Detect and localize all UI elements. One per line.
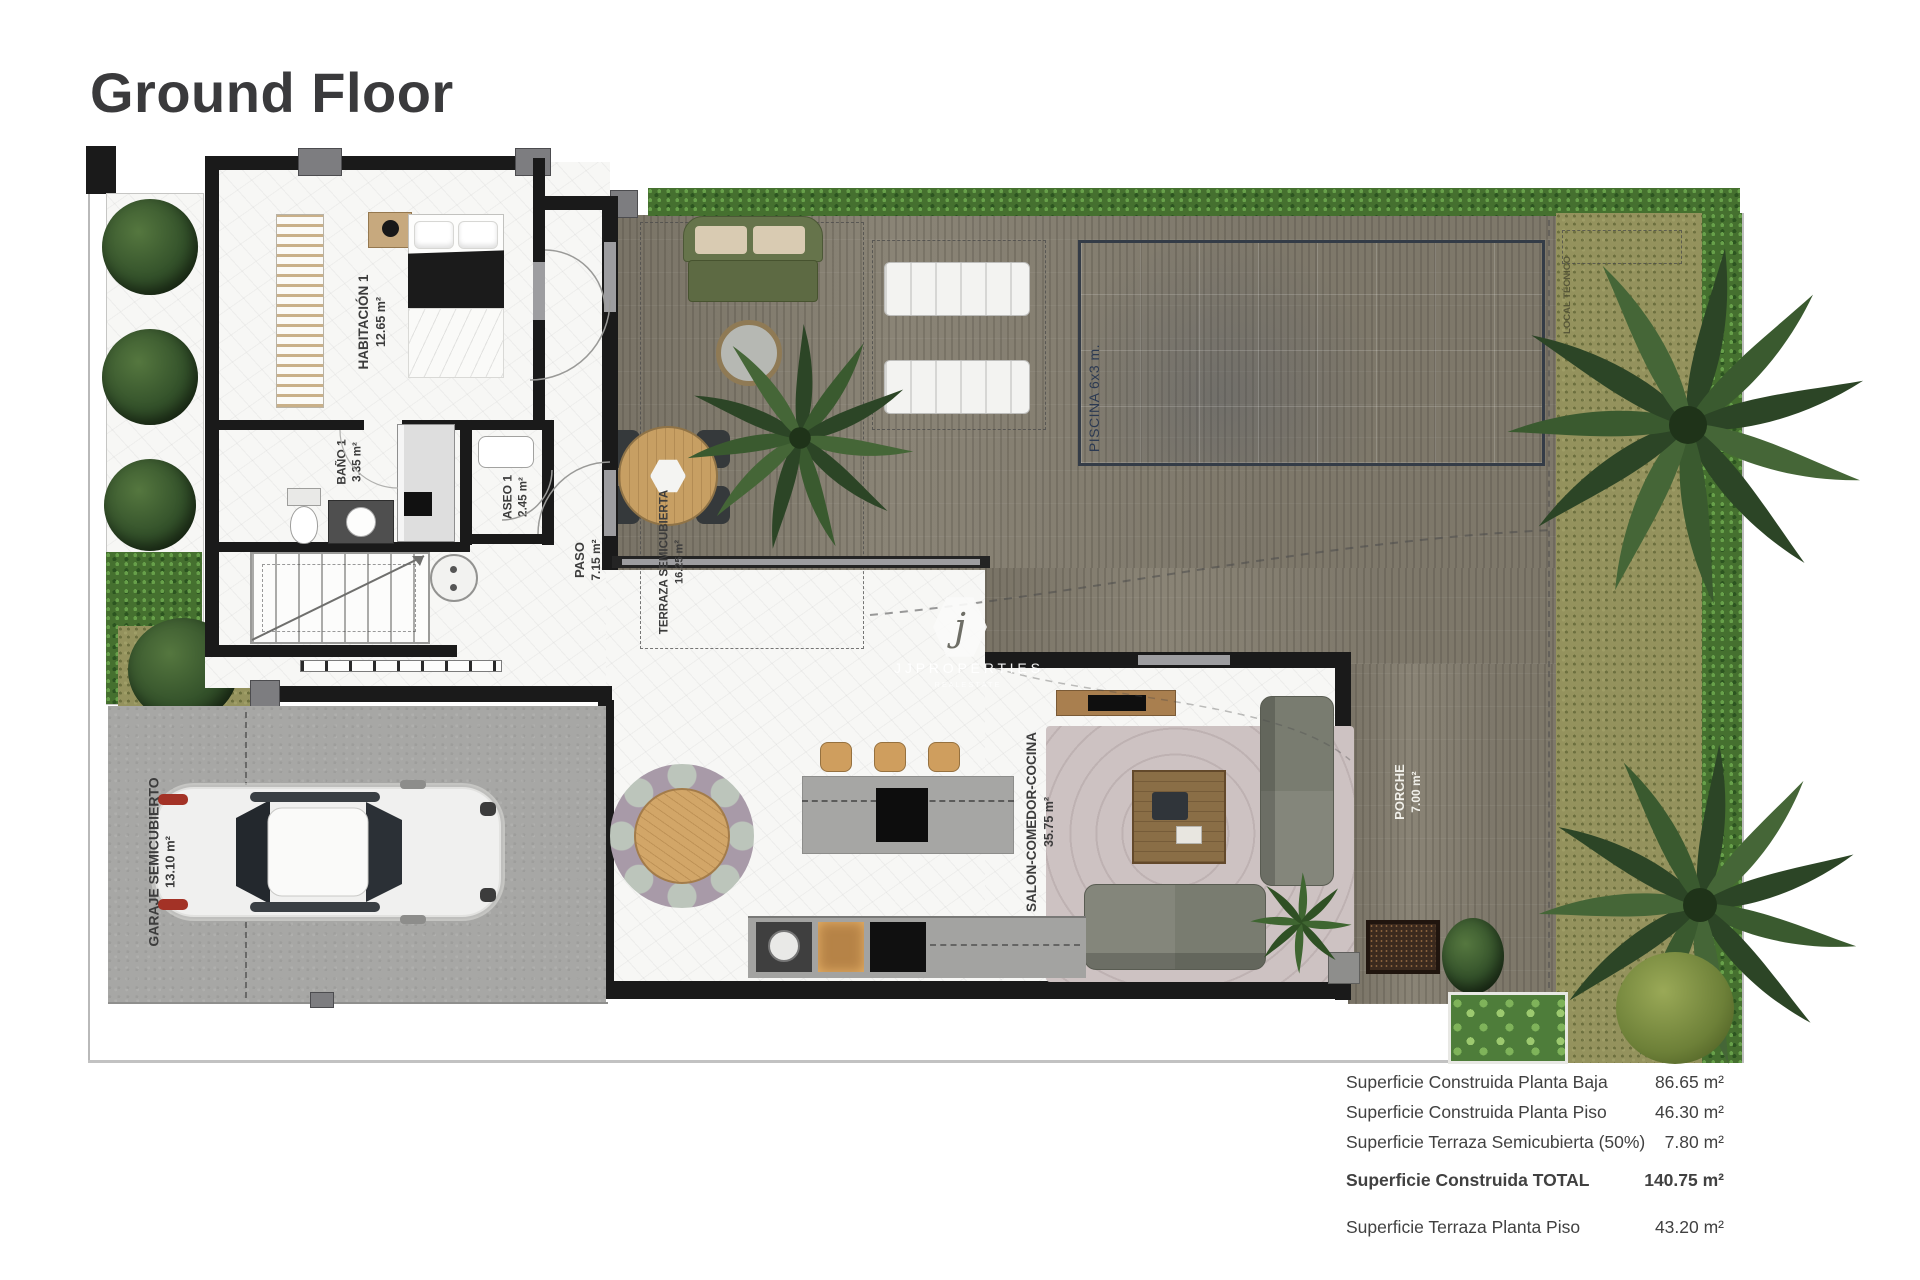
deck-mid-band — [985, 568, 1560, 664]
pillow — [414, 221, 454, 249]
outdoor-sofa-cushion — [695, 226, 747, 254]
summary-row: Superficie Terraza Planta Piso 43.20 m² — [1346, 1217, 1724, 1238]
tree — [102, 329, 198, 425]
toilet — [287, 488, 321, 506]
summary-value: 86.65 m² — [1655, 1072, 1724, 1093]
watermark-name: J J P R O P E R T I E S — [872, 660, 1062, 676]
area-summary: Superficie Construida Planta Baja 86.65 … — [1346, 1072, 1724, 1247]
sun-lounger — [884, 360, 1030, 414]
summary-row: Superficie Terraza Semicubierta (50%) 7.… — [1346, 1132, 1724, 1153]
stove — [870, 922, 926, 972]
wall — [460, 420, 472, 545]
summary-row: Superficie Construida Planta Baja 86.65 … — [1346, 1072, 1724, 1093]
stairs-dashed — [262, 564, 416, 632]
tv — [1088, 695, 1146, 711]
tree — [102, 199, 198, 295]
cooktop — [876, 788, 928, 842]
summary-value: 7.80 m² — [1665, 1132, 1724, 1153]
bedroom-label: HABITACIÓN 1 12.65 m² — [355, 274, 389, 369]
gate-pillar — [310, 992, 334, 1008]
sun-lounger — [884, 262, 1030, 316]
watermark-initial: j — [954, 608, 966, 646]
kitchen-counter-dashes — [930, 944, 1080, 946]
shower — [397, 424, 455, 542]
wall — [533, 158, 545, 262]
window — [533, 262, 545, 320]
outdoor-sofa-cushion — [753, 226, 805, 254]
window — [604, 242, 616, 312]
bed-duvet — [408, 308, 504, 378]
summary-value: 43.20 m² — [1655, 1217, 1724, 1238]
bar-stool — [874, 742, 906, 772]
bathroom-label: BAÑO 1 3.35 m² — [335, 439, 366, 484]
pool — [1078, 240, 1545, 466]
dining-table — [634, 788, 730, 884]
porch-step — [1328, 952, 1360, 984]
wall — [205, 156, 219, 657]
outdoor-sofa-seat — [688, 260, 818, 302]
garage-threshold-line — [108, 1002, 608, 1004]
wall — [217, 420, 364, 430]
summary-value: 46.30 m² — [1655, 1102, 1724, 1123]
summary-label: Superficie Construida Planta Baja — [1346, 1072, 1608, 1093]
plot-boundary-right — [1742, 213, 1744, 1063]
salon-label: SALON-COMEDOR-COCINA 35.75 m² — [1023, 732, 1057, 912]
doormat — [1366, 920, 1440, 974]
sink — [346, 507, 376, 537]
window — [604, 470, 616, 536]
summary-value: 140.75 m² — [1644, 1170, 1724, 1191]
summary-label: Superficie Construida TOTAL — [1346, 1170, 1589, 1191]
outdoor-side-table — [716, 320, 782, 386]
summary-label: Superficie Terraza Planta Piso — [1346, 1217, 1580, 1238]
garden-bush — [1616, 952, 1734, 1064]
coffee-table-book — [1176, 826, 1202, 844]
aseo-sink — [478, 436, 534, 468]
wall — [205, 156, 547, 170]
garage-label: GARAJE SEMICUBIERTO 13.10 m² — [144, 777, 179, 946]
wall — [470, 534, 554, 544]
oven — [818, 922, 864, 972]
summary-label: Superficie Terraza Semicubierta (50%) — [1346, 1132, 1645, 1153]
bar-stool — [820, 742, 852, 772]
hall-window-mullions — [300, 660, 502, 672]
wall-pillar — [298, 148, 342, 176]
washing-machine-knob — [450, 584, 457, 591]
sofa-vertical — [1260, 696, 1334, 886]
summary-label: Superficie Construida Planta Piso — [1346, 1102, 1607, 1123]
washing-machine-knob — [450, 566, 457, 573]
shower-fixture — [404, 492, 432, 516]
aseo-label: ASEO 1 2.45 m² — [501, 475, 532, 519]
bar-stool — [928, 742, 960, 772]
washing-machine — [430, 554, 478, 602]
wall — [542, 420, 554, 545]
garden-dashed-zone — [1562, 230, 1682, 264]
summary-row: Superficie Construida Planta Piso 46.30 … — [1346, 1102, 1724, 1123]
sofa-horizontal — [1084, 884, 1266, 970]
hall-label: PASO 7.15 m² — [572, 539, 604, 580]
coffee-table-tray — [1152, 792, 1188, 820]
corner-pillar — [86, 146, 116, 194]
porch-label: PORCHE 7.00 m² — [1392, 764, 1424, 820]
pillow — [458, 221, 498, 249]
summary-row-total: Superficie Construida TOTAL 140.75 m² — [1346, 1170, 1724, 1191]
local-tecnico-label: LOCAL TÉCNICO — [1562, 256, 1574, 334]
garage-floor — [108, 706, 606, 1002]
pool-label: PISCINA 6x3 m. — [1085, 344, 1103, 452]
right-garden-grass — [1556, 213, 1708, 1063]
kitchen-sink — [768, 930, 800, 962]
wall — [205, 645, 457, 657]
watermark-tagline: R E A L E S T A T E — [872, 680, 1062, 689]
floor-plan-page: Ground Floor LOCAL TÉCNICO PISCINA 6x3 m… — [0, 0, 1920, 1280]
toilet-bowl — [290, 506, 318, 544]
tree — [104, 459, 196, 551]
wardrobe — [276, 214, 324, 408]
terrace-label: TERRAZA SEMICUBIERTA 16.25 m² — [657, 490, 686, 634]
page-title: Ground Floor — [90, 60, 454, 125]
right-hedge — [1702, 213, 1742, 1063]
deck-corner-bush — [1442, 918, 1504, 994]
top-hedge — [648, 188, 1740, 216]
window — [1138, 655, 1230, 665]
wall — [278, 686, 612, 702]
bedside-lamp — [382, 220, 399, 237]
planter — [1448, 992, 1568, 1064]
garage-parking-dashes — [245, 712, 247, 998]
plot-boundary-left — [88, 194, 90, 1062]
wall — [533, 320, 545, 424]
deck-garden-dashed-line — [1548, 220, 1550, 998]
